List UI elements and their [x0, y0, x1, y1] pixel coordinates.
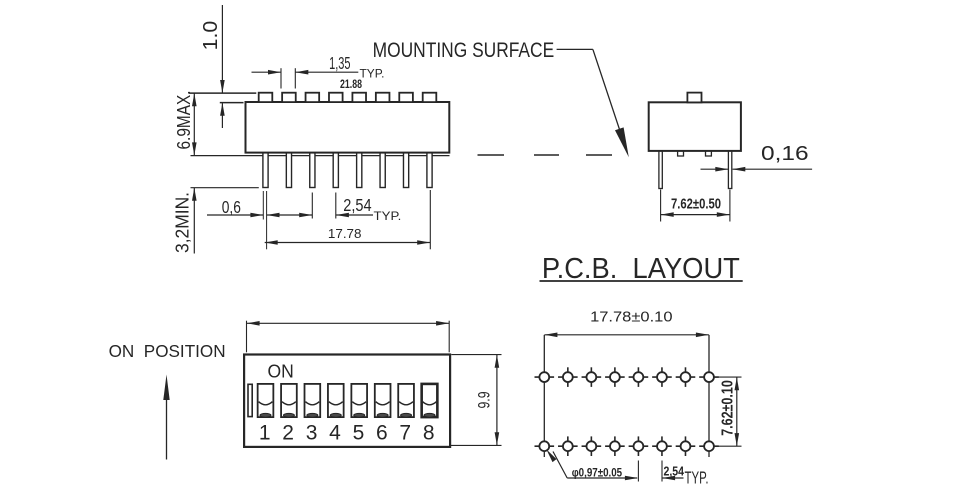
svg-text:2,54: 2,54 — [343, 195, 372, 215]
svg-text:6.9MAX.: 6.9MAX. — [174, 91, 194, 150]
svg-text:1: 1 — [259, 422, 271, 445]
svg-text:1,35: 1,35 — [329, 53, 350, 73]
svg-text:0,16: 0,16 — [761, 143, 809, 165]
svg-text:4: 4 — [329, 422, 341, 445]
svg-text:17.78±0.10: 17.78±0.10 — [590, 308, 672, 325]
svg-text:7: 7 — [399, 422, 411, 445]
svg-text:8: 8 — [423, 422, 435, 445]
svg-text:7.62±0.50: 7.62±0.50 — [671, 195, 721, 212]
svg-text:9.9: 9.9 — [475, 392, 493, 409]
svg-text:3,2MIN.: 3,2MIN. — [173, 192, 193, 253]
svg-text:TYP.: TYP. — [374, 211, 402, 223]
svg-text:0,6: 0,6 — [222, 197, 241, 217]
svg-text:MOUNTING SURFACE: MOUNTING SURFACE — [373, 38, 555, 62]
svg-text:ON: ON — [268, 360, 294, 381]
svg-text:ON POSITION: ON POSITION — [109, 341, 226, 361]
svg-text:21.88: 21.88 — [340, 79, 362, 91]
svg-text:1.0: 1.0 — [200, 21, 222, 51]
svg-text:3: 3 — [306, 422, 318, 445]
svg-text:φ0,97±0.05: φ0,97±0.05 — [572, 466, 623, 480]
svg-text:TYP.: TYP. — [360, 68, 385, 80]
svg-text:TYP.: TYP. — [685, 467, 709, 487]
svg-text:2,54: 2,54 — [664, 463, 685, 478]
svg-text:2: 2 — [282, 422, 294, 445]
svg-text:17.78: 17.78 — [328, 226, 362, 241]
svg-text:5: 5 — [353, 422, 365, 445]
svg-text:7.62±0.10: 7.62±0.10 — [720, 380, 737, 436]
svg-text:6: 6 — [376, 422, 388, 445]
